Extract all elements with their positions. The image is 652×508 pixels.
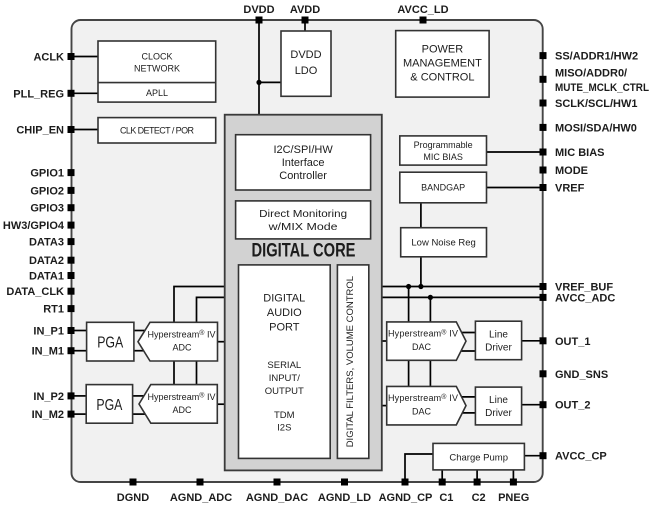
svg-text:AVDD: AVDD bbox=[290, 4, 320, 16]
svg-text:DIGITAL: DIGITAL bbox=[263, 293, 305, 305]
svg-text:AGND_LD: AGND_LD bbox=[318, 492, 371, 504]
svg-text:ADC: ADC bbox=[172, 405, 192, 415]
svg-text:w/MIX Mode: w/MIX Mode bbox=[267, 221, 337, 233]
svg-text:BANDGAP: BANDGAP bbox=[421, 183, 465, 193]
svg-text:MUTE_MCLK_CTRL: MUTE_MCLK_CTRL bbox=[555, 82, 649, 94]
svg-text:Charge Pump: Charge Pump bbox=[449, 452, 508, 463]
svg-text:DATA1: DATA1 bbox=[29, 271, 64, 283]
svg-text:AVCC_ADC: AVCC_ADC bbox=[555, 292, 615, 304]
svg-text:PGA: PGA bbox=[96, 397, 122, 414]
svg-text:SS/ADDR1/HW2: SS/ADDR1/HW2 bbox=[555, 51, 638, 63]
svg-text:MISO/ADDR0/: MISO/ADDR0/ bbox=[555, 68, 627, 80]
svg-text:IN_M2: IN_M2 bbox=[32, 409, 64, 421]
svg-text:Line: Line bbox=[489, 330, 508, 341]
svg-text:OUTPUT: OUTPUT bbox=[265, 386, 304, 397]
svg-text:POWER: POWER bbox=[422, 44, 464, 56]
svg-text:GPIO1: GPIO1 bbox=[30, 168, 64, 180]
svg-text:VREF: VREF bbox=[555, 183, 585, 195]
svg-text:DAC: DAC bbox=[412, 342, 432, 352]
svg-text:Line: Line bbox=[489, 395, 508, 406]
svg-text:DATA_CLK: DATA_CLK bbox=[6, 286, 64, 298]
svg-text:PGA: PGA bbox=[97, 334, 123, 351]
svg-text:TDM: TDM bbox=[274, 410, 295, 421]
svg-text:CLK DETECT / POR: CLK DETECT / POR bbox=[120, 126, 195, 136]
svg-text:OUT_1: OUT_1 bbox=[555, 336, 590, 348]
svg-text:APLL: APLL bbox=[146, 88, 168, 98]
svg-text:IN_P2: IN_P2 bbox=[33, 391, 64, 403]
svg-text:OUT_2: OUT_2 bbox=[555, 400, 590, 412]
svg-text:IN_P1: IN_P1 bbox=[33, 326, 64, 338]
svg-text:ADC: ADC bbox=[172, 342, 192, 352]
svg-text:NETWORK: NETWORK bbox=[134, 64, 180, 74]
svg-text:C1: C1 bbox=[439, 492, 453, 504]
svg-text:DATA3: DATA3 bbox=[29, 237, 64, 249]
svg-text:DIGITAL CORE: DIGITAL CORE bbox=[252, 241, 356, 262]
svg-text:AGND_CP: AGND_CP bbox=[379, 492, 433, 504]
svg-text:AGND_DAC: AGND_DAC bbox=[246, 492, 308, 504]
svg-text:ACLK: ACLK bbox=[33, 52, 64, 64]
svg-text:Low Noise Reg: Low Noise Reg bbox=[411, 238, 475, 249]
svg-text:IN_M1: IN_M1 bbox=[32, 346, 64, 358]
svg-text:Interface: Interface bbox=[282, 157, 325, 169]
svg-text:GPIO2: GPIO2 bbox=[30, 185, 64, 197]
svg-text:PLL_REG: PLL_REG bbox=[13, 88, 64, 100]
svg-text:CHIP_EN: CHIP_EN bbox=[16, 125, 64, 137]
svg-text:AGND_ADC: AGND_ADC bbox=[170, 492, 232, 504]
svg-text:PORT: PORT bbox=[269, 322, 300, 334]
svg-text:HW3/GPIO4: HW3/GPIO4 bbox=[3, 220, 65, 232]
svg-text:Hyperstream® IV: Hyperstream® IV bbox=[148, 392, 216, 402]
svg-text:MIC BIAS: MIC BIAS bbox=[555, 147, 605, 159]
svg-text:GPIO3: GPIO3 bbox=[30, 203, 64, 215]
svg-text:MANAGEMENT: MANAGEMENT bbox=[403, 58, 482, 70]
svg-text:DVDD: DVDD bbox=[243, 4, 274, 16]
svg-text:MOSI/SDA/HW0: MOSI/SDA/HW0 bbox=[555, 122, 637, 134]
svg-text:GND_SNS: GND_SNS bbox=[555, 369, 608, 381]
svg-text:AVCC_LD: AVCC_LD bbox=[397, 4, 448, 16]
svg-text:CLOCK: CLOCK bbox=[141, 52, 172, 62]
svg-text:DIGITAL FILTERS, VOLUME CONTRO: DIGITAL FILTERS, VOLUME CONTROL bbox=[345, 276, 356, 447]
svg-text:& CONTROL: & CONTROL bbox=[410, 72, 474, 84]
svg-text:SCLK/SCL/HW1: SCLK/SCL/HW1 bbox=[555, 98, 638, 110]
svg-text:DAC: DAC bbox=[412, 407, 432, 417]
svg-text:Hyperstream® IV: Hyperstream® IV bbox=[148, 329, 216, 339]
svg-text:PNEG: PNEG bbox=[498, 492, 529, 504]
svg-text:Driver: Driver bbox=[485, 408, 512, 419]
svg-text:LDO: LDO bbox=[295, 65, 318, 77]
svg-text:I2C/SPI/HW: I2C/SPI/HW bbox=[273, 144, 333, 156]
svg-text:MIC BIAS: MIC BIAS bbox=[423, 152, 463, 162]
svg-text:C2: C2 bbox=[472, 492, 486, 504]
svg-text:MODE: MODE bbox=[555, 165, 588, 177]
svg-text:INPUT/: INPUT/ bbox=[269, 373, 301, 384]
svg-text:I2S: I2S bbox=[277, 423, 291, 434]
svg-text:DVDD: DVDD bbox=[290, 49, 321, 61]
svg-text:AUDIO: AUDIO bbox=[267, 307, 302, 319]
svg-text:Programmable: Programmable bbox=[414, 140, 473, 150]
svg-text:Hyperstream® IV: Hyperstream® IV bbox=[388, 328, 458, 338]
svg-text:Hyperstream® IV: Hyperstream® IV bbox=[388, 393, 458, 403]
svg-text:RT1: RT1 bbox=[43, 304, 64, 316]
svg-text:SERIAL: SERIAL bbox=[267, 360, 301, 371]
svg-text:Driver: Driver bbox=[485, 343, 512, 354]
svg-text:AVCC_CP: AVCC_CP bbox=[555, 451, 607, 463]
svg-text:Controller: Controller bbox=[279, 170, 327, 182]
svg-text:Direct Monitoring: Direct Monitoring bbox=[259, 208, 347, 220]
svg-text:DGND: DGND bbox=[117, 492, 149, 504]
svg-text:DATA2: DATA2 bbox=[29, 255, 64, 267]
